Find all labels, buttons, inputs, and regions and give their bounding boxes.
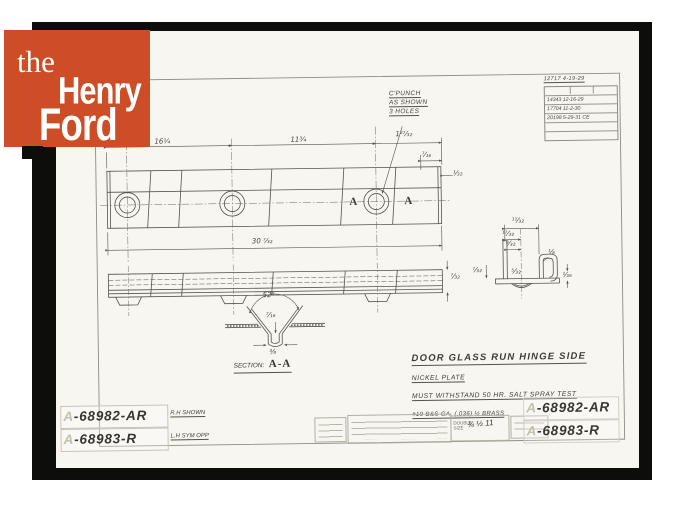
part-number-68982-ar-right: A-68982-AR [524,397,618,418]
section-label-prefix: SECTION: [234,362,265,369]
dim-angle-52: 52° [263,291,276,299]
section-mark-a-left: A [349,196,357,208]
logo-text-ford: Ford [39,103,117,148]
dim-11-32: ¹¹⁄₃₂ [512,217,525,225]
dim-1-8: ⅛ [548,248,555,256]
part-number-68983-r: A-68983-R [61,429,167,450]
part-number-68982-ar: A-68982-AR [61,406,167,427]
part-number-text: -68983-R [537,422,600,438]
scale-box: DOUBLE SIZE ¾ ½ 11 [450,415,509,442]
drawing-title: DOOR GLASS RUN HINGE SIDE [411,351,586,366]
dim-1-27-32: 1²⁷⁄₃₂ [395,130,412,138]
punch-note-line3: 3 HOLES [389,108,419,116]
dim-1-16: ¹⁄₁₆ [562,271,572,279]
part-prefix: A [526,400,537,415]
approval-stamp-box [314,417,346,442]
part-prefix: A [63,432,74,447]
part-number-box: A-68982-AR [60,404,168,429]
dim-11-3-4: 11¾ [290,136,306,144]
dim-1-32: ¹⁄₃₂ [453,169,463,177]
dim-9-32: ⁹⁄₃₂ [506,240,516,248]
part-number-text: -68982-AR [537,399,610,415]
dim-17-32: ¹⁷⁄₃₂ [502,230,515,238]
fine-print-lines [318,421,342,438]
section-mark-a-right: A [404,195,412,207]
section-label: SECTION: A-A [233,354,291,374]
punch-note-line1: C'PUNCH [389,90,421,98]
dim-7-32: ⁷⁄₃₂ [472,266,482,274]
part-prefix: A [63,409,74,424]
scale-handwritten-marks: ¾ ½ 11 [467,418,494,429]
logo-text-the: the [17,46,55,77]
section-label-name: A-A [269,358,292,370]
revision-row-empty [545,131,617,140]
part-number-box: A-68983-R [60,427,168,452]
dim-depth-7-16: ⁷⁄₁₆ [266,311,276,319]
henry-ford-logo: the Henry Ford [4,30,150,147]
part-number-box: A-68982-AR [523,396,619,420]
dim-16-1-4: 16¼ [154,137,170,145]
dim-7-16: ⁷⁄₁₆ [422,151,432,159]
part-number-text: -68982-AR [74,408,147,424]
finish-note: NICKEL PLATE [412,374,465,383]
part-number-text: -68983-R [74,431,137,447]
dim-overall-30-7-32: 30 ⁷⁄₃₂ [252,237,273,245]
frame-corner-mark [22,146,43,159]
part-prefix: A [526,423,537,438]
fine-print-lines [351,418,447,440]
punch-note-line2: AS SHOWN [389,99,428,108]
dim-5-32: ⁵⁄₃₂ [511,268,521,276]
part-number-box: A-68983-R [523,419,619,443]
fine-print-box [347,414,451,444]
rh-shown-note: R.H SHOWN [170,410,205,417]
part-number-68983-r-right: A-68983-R [524,420,618,441]
lh-sym-opp-note: L.H SYM OPP [171,433,209,441]
revision-table: 12717 4-19-29 14343 12-16-29 17704 11-2-… [543,66,618,141]
revision-top-entry: 12717 4-19-29 [544,76,585,84]
page: 12717 4-19-29 14343 12-16-29 17704 11-2-… [0,0,683,512]
dim-side-end-7-32: ⁷⁄₃₂ [450,272,460,280]
